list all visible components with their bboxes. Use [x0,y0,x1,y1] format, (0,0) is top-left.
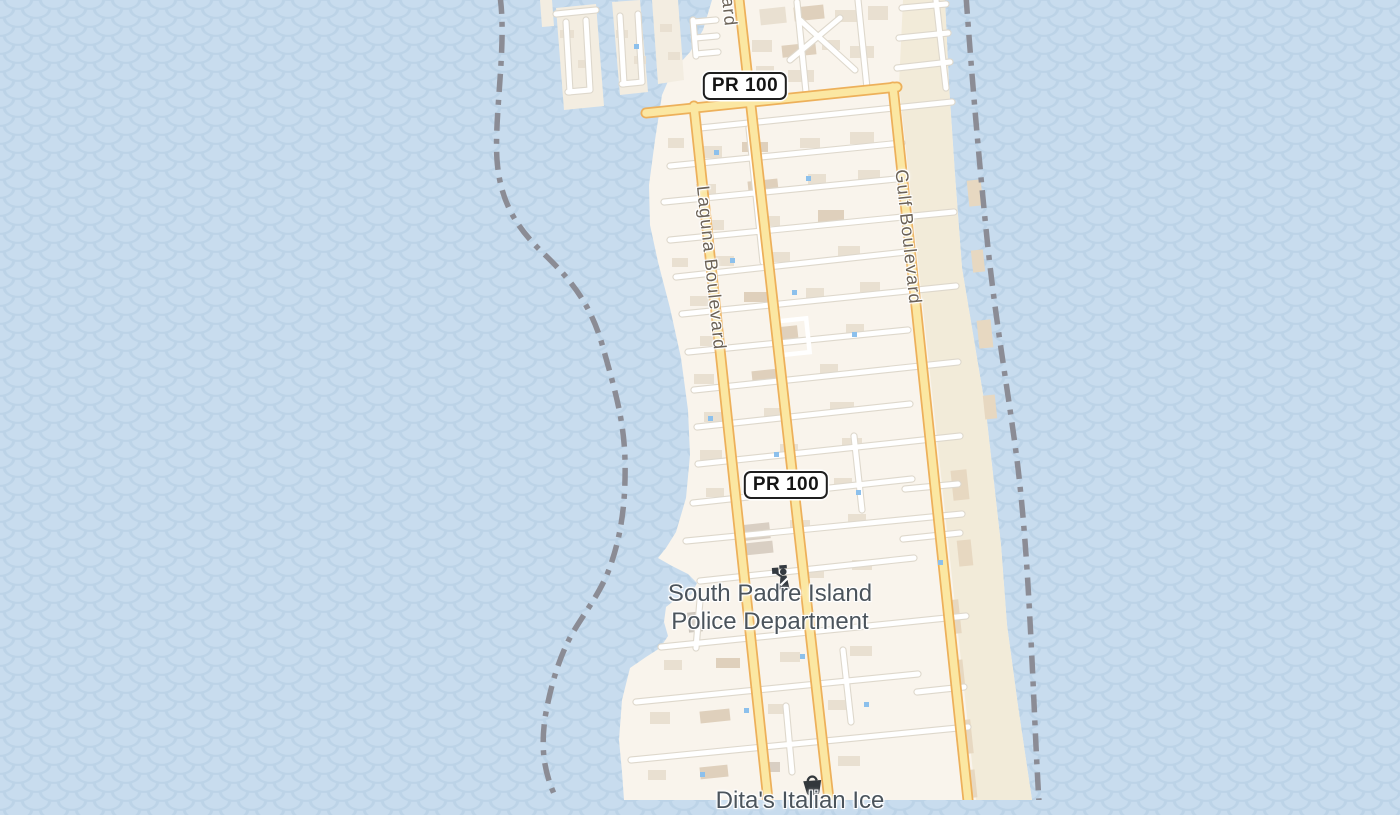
map-canvas[interactable]: PR 100 PR 100 Laguna Boulevard Gulf Boul… [0,0,1400,800]
route-shield-pr100-north: PR 100 [703,72,787,100]
route-shield-pr100-south: PR 100 [744,471,828,499]
boundary-line-west [497,0,626,800]
map-geometry [0,0,1400,800]
